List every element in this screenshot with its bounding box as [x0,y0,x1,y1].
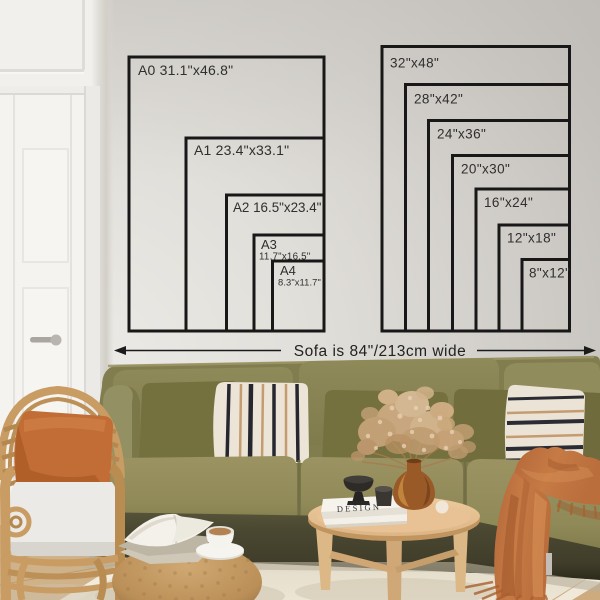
svg-text:11.7"x16.5": 11.7"x16.5" [259,252,311,263]
svg-text:32"x48": 32"x48" [390,56,439,71]
svg-text:12"x18": 12"x18" [507,231,556,246]
svg-text:28"x42": 28"x42" [414,92,463,107]
svg-text:A2 16.5"x23.4": A2 16.5"x23.4" [233,200,322,215]
svg-text:24"x36": 24"x36" [437,127,486,142]
svg-text:A0 31.1"x46.8": A0 31.1"x46.8" [138,62,233,78]
svg-text:16"x24": 16"x24" [484,195,533,210]
svg-text:20"x30": 20"x30" [461,162,510,177]
svg-text:8.3"x11.7": 8.3"x11.7" [278,277,321,288]
svg-text:A3: A3 [261,237,277,252]
svg-text:A1 23.4"x33.1": A1 23.4"x33.1" [194,142,289,158]
svg-text:Sofa is 84"/213cm wide: Sofa is 84"/213cm wide [294,343,466,360]
svg-text:8"x12": 8"x12" [529,266,570,281]
